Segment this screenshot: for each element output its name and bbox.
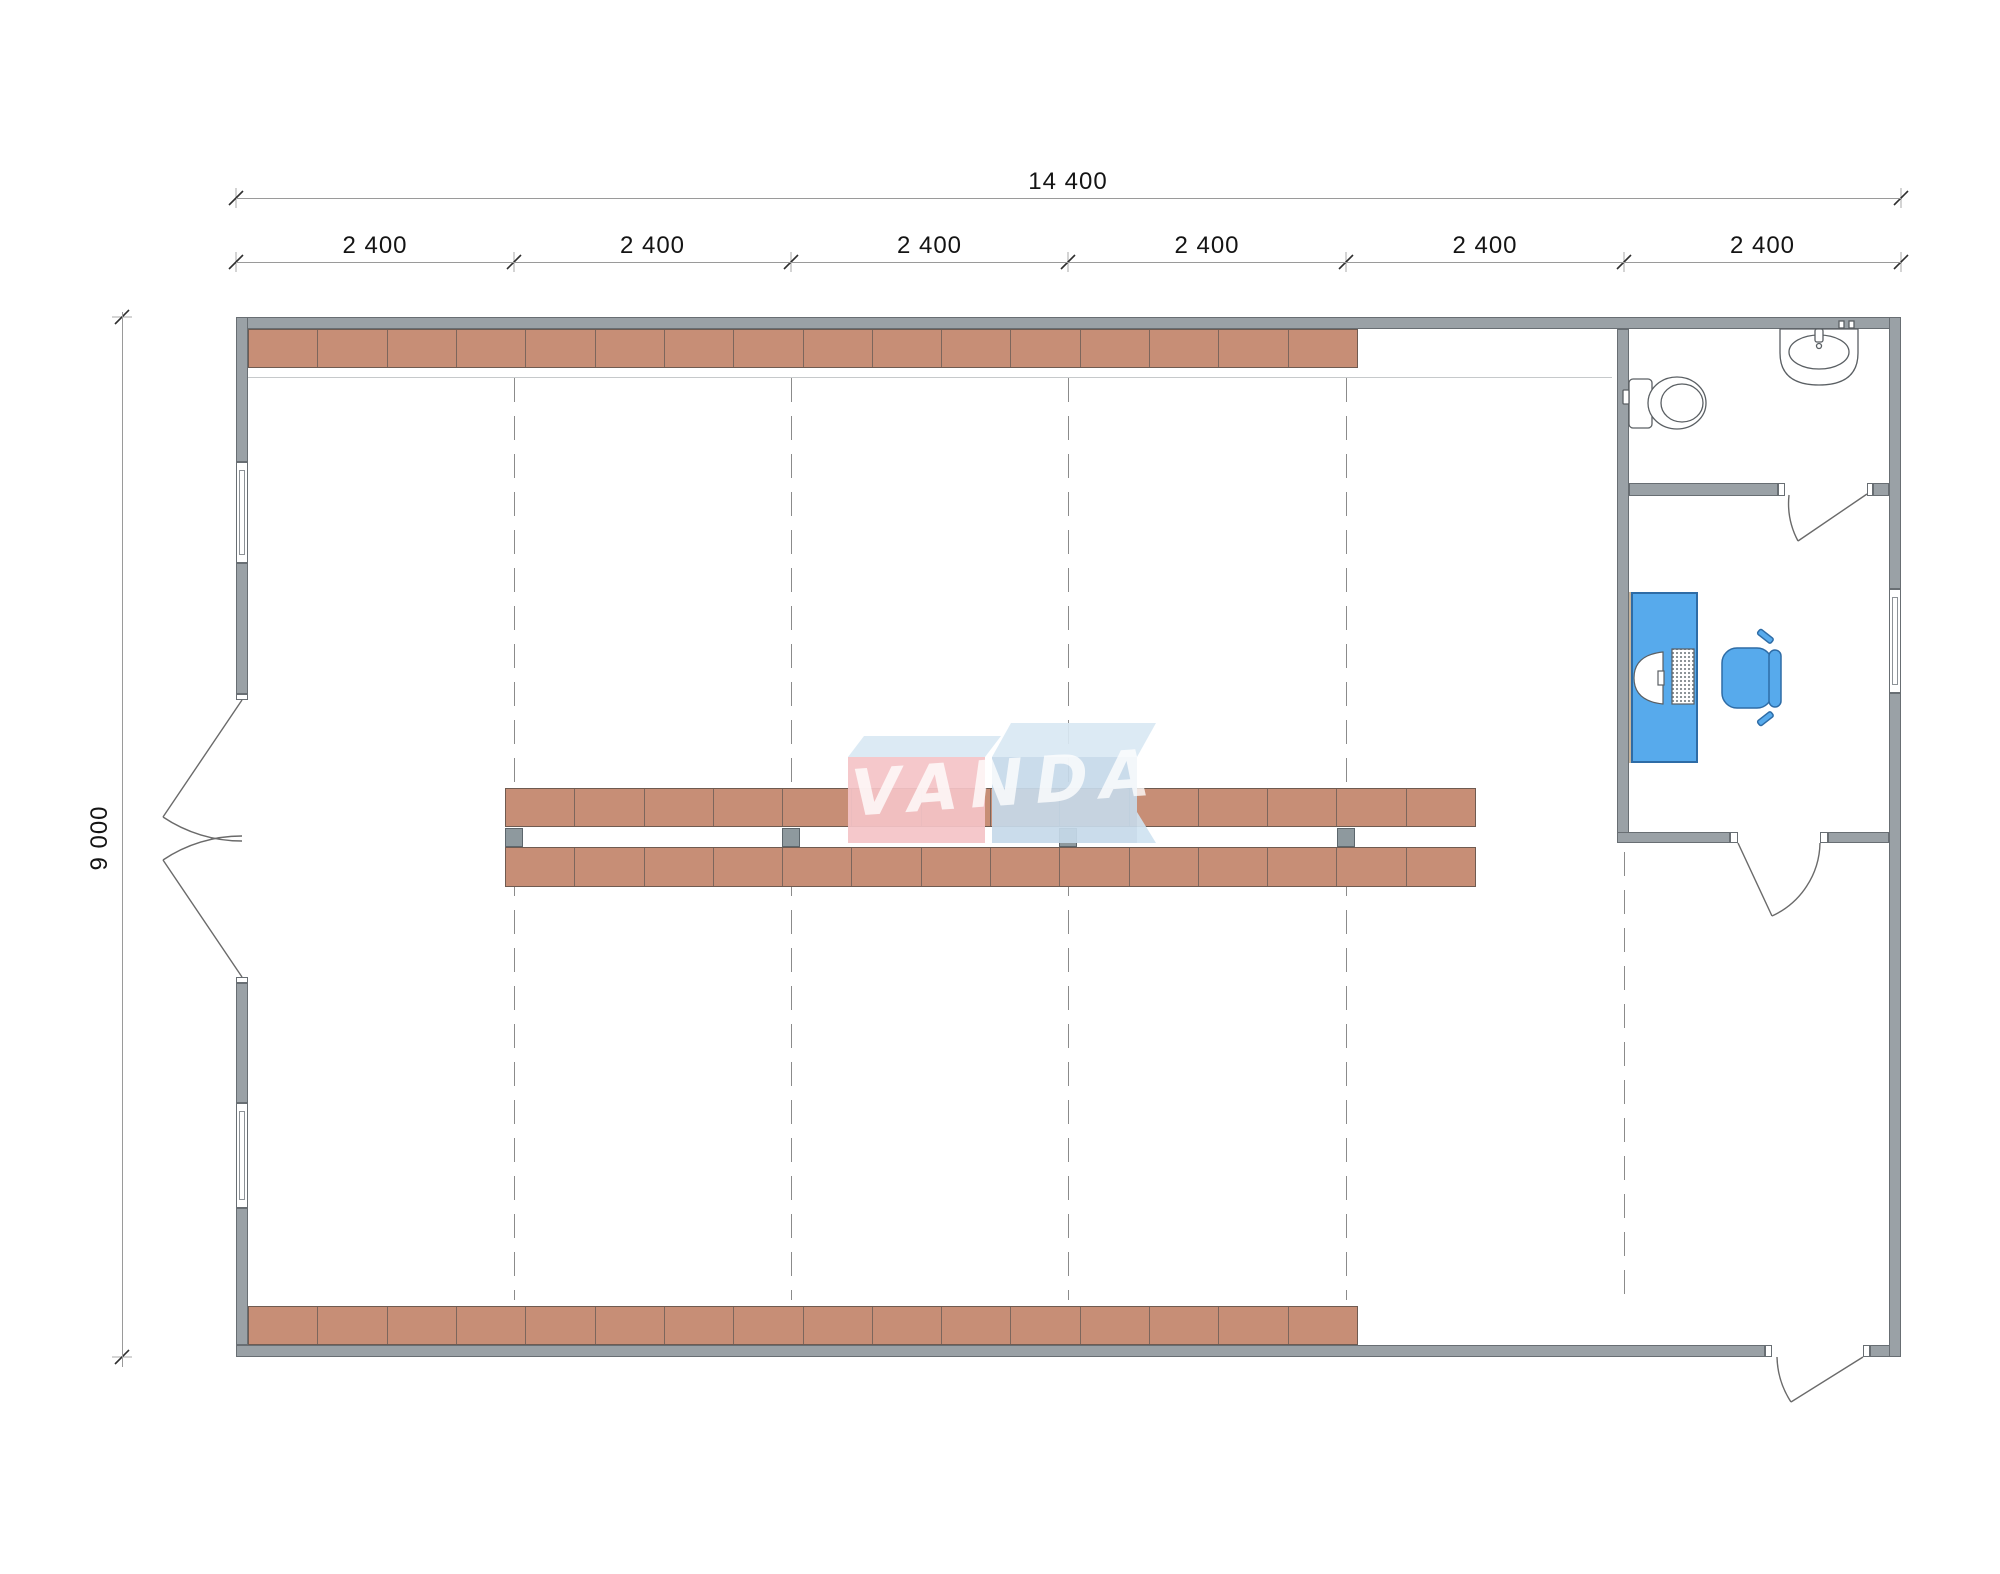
shelf-segment (644, 789, 713, 826)
shelf-segment (990, 848, 1059, 886)
top-shelf-shadow-line (248, 377, 1612, 378)
shelf-segment (456, 1307, 525, 1344)
shelf-segment (990, 789, 1059, 826)
shelf-segment (782, 789, 851, 826)
wall-bottom-left-segment (236, 1345, 1765, 1357)
shelf-segment (387, 1307, 456, 1344)
door-swing-arc (163, 817, 242, 841)
shelf-segment (1198, 848, 1267, 886)
shelf-segment (713, 848, 782, 886)
shelf-segment (1080, 1307, 1149, 1344)
shelf-segment (1010, 1307, 1079, 1344)
chair-armrest (1757, 629, 1774, 644)
dim-label-bay: 2 400 (620, 232, 685, 260)
wall-left-segment-1 (236, 317, 248, 462)
floor-plan-canvas: VANDA 14 400 9 000 2 4002 4002 4002 4002… (0, 0, 2000, 1574)
dim-label-bay: 2 400 (1174, 232, 1239, 260)
toilet (1623, 377, 1706, 429)
toilet-bowl (1648, 377, 1706, 429)
jamb-office-right (1820, 832, 1828, 843)
window-right-office (1889, 589, 1901, 693)
shelf-segment (921, 789, 990, 826)
window-left-upper (236, 462, 248, 563)
jamb-entry-bottom (236, 977, 248, 983)
shelf-segment (1288, 330, 1357, 367)
rack-post (505, 828, 523, 847)
window-glass (239, 470, 245, 555)
shelf-segment (1336, 848, 1405, 886)
shelf-segment (733, 330, 802, 367)
double-entry-door (163, 700, 242, 977)
shelf-segment (1406, 848, 1475, 886)
shelf-segment (644, 848, 713, 886)
shelf-segment (733, 1307, 802, 1344)
wall-top (236, 317, 1901, 329)
office-chair (1722, 629, 1781, 727)
shelf-segment (664, 1307, 733, 1344)
toilet-tank (1629, 379, 1652, 428)
shelf-segment (782, 848, 851, 886)
shelf-row-bottom-wall (248, 1306, 1358, 1345)
office-desk (1631, 592, 1698, 763)
shelf-segment (1198, 789, 1267, 826)
shelf-segment (1288, 1307, 1357, 1344)
shelf-segment (872, 1307, 941, 1344)
bathroom-door (1789, 494, 1867, 541)
door-swing-arc (163, 836, 242, 860)
shelf-segment (525, 1307, 594, 1344)
shelf-segment (1080, 330, 1149, 367)
shelf-segment (1149, 1307, 1218, 1344)
sink-faucet (1815, 329, 1823, 342)
shelf-segment (803, 330, 872, 367)
jamb-exterior-right (1863, 1345, 1870, 1357)
shelf-segment (851, 789, 920, 826)
toilet-seat (1661, 384, 1703, 422)
shelf-row-top-wall (248, 329, 1358, 368)
door-leaf (1798, 494, 1867, 541)
shelf-segment (872, 330, 941, 367)
shelf-segment (803, 1307, 872, 1344)
rack-post (1337, 828, 1355, 847)
shelf-segment (1218, 1307, 1287, 1344)
shelf-segment (249, 330, 317, 367)
jamb-bathroom-left (1778, 483, 1785, 496)
door-leaf (163, 700, 242, 817)
shelf-segment (1129, 848, 1198, 886)
shelf-segment (941, 330, 1010, 367)
shelf-segment (1267, 789, 1336, 826)
chair-backrest (1769, 650, 1781, 707)
window-glass (1892, 597, 1898, 685)
dim-label-bay: 2 400 (342, 232, 407, 260)
shelf-segment (595, 330, 664, 367)
rack-post (782, 828, 800, 847)
watermark-box-top-left (848, 736, 1001, 757)
jamb-exterior-left (1765, 1345, 1772, 1357)
shelf-row-center-lower (505, 847, 1476, 887)
office-door (1738, 843, 1820, 916)
door-swing-arc (1777, 1357, 1791, 1402)
shelf-segment (506, 789, 574, 826)
shelf-segment (506, 848, 574, 886)
door-leaf (163, 860, 242, 977)
wall-left-segment-2 (236, 563, 248, 694)
dim-label-bay: 2 400 (1452, 232, 1517, 260)
dim-label-total-height: 9 000 (86, 805, 114, 870)
shelf-segment (1406, 789, 1475, 826)
shelf-segment (574, 789, 643, 826)
shelf-segment (1059, 848, 1128, 886)
wall-right-segment-1 (1889, 317, 1901, 589)
shelf-segment (921, 848, 990, 886)
sink-basin (1780, 329, 1858, 385)
shelf-segment (1336, 789, 1405, 826)
dim-label-total-width: 14 400 (1028, 168, 1107, 196)
shelf-segment (1149, 330, 1218, 367)
shelf-segment (249, 1307, 317, 1344)
wall-bathroom-south-segment (1629, 483, 1778, 496)
dim-line-height (122, 312, 123, 1367)
jamb-entry-top (236, 694, 248, 700)
wall-office-south-segment-1 (1617, 832, 1730, 843)
shelf-segment (525, 330, 594, 367)
shelf-segment (1218, 330, 1287, 367)
dim-line-total-width (236, 198, 1901, 199)
jamb-bathroom-right (1867, 483, 1873, 496)
shelf-segment (317, 1307, 386, 1344)
chair-armrest (1757, 711, 1774, 726)
window-glass (239, 1111, 245, 1200)
wall-bathroom-south-stub (1873, 483, 1889, 496)
sink-drain (1817, 344, 1822, 349)
shelf-segment (1059, 789, 1128, 826)
sink-bowl (1789, 335, 1849, 369)
door-swing-arc (1789, 495, 1798, 541)
dim-label-bay: 2 400 (897, 232, 962, 260)
rack-post (1059, 828, 1077, 847)
window-left-lower (236, 1103, 248, 1208)
shelf-segment (595, 1307, 664, 1344)
shelf-segment (1267, 848, 1336, 886)
shelf-segment (387, 330, 456, 367)
chair-seat (1722, 648, 1772, 708)
wall-left-segment-4 (236, 1208, 248, 1345)
jamb-office-left (1730, 832, 1738, 843)
shelf-segment (317, 330, 386, 367)
door-leaf (1738, 843, 1772, 916)
shelf-segment (664, 330, 733, 367)
door-swing-arc (1772, 843, 1820, 916)
dim-label-bay: 2 400 (1730, 232, 1795, 260)
shelf-row-center-upper (505, 788, 1476, 827)
wall-office-south-segment-2 (1828, 832, 1889, 843)
grid-line-dashed (1624, 852, 1625, 1300)
dim-line-bays (236, 262, 1901, 263)
wall-partition-office (1617, 329, 1629, 843)
wall-left-segment-3 (236, 983, 248, 1103)
shelf-segment (713, 789, 782, 826)
shelf-segment (1129, 789, 1198, 826)
shelf-segment (1010, 330, 1079, 367)
shelf-segment (456, 330, 525, 367)
shelf-segment (574, 848, 643, 886)
door-leaf (1791, 1357, 1863, 1402)
exterior-door (1777, 1357, 1863, 1402)
watermark-box-top-right (992, 723, 1156, 757)
wall-right-segment-2 (1889, 693, 1901, 1357)
shelf-segment (941, 1307, 1010, 1344)
sink (1780, 321, 1858, 385)
shelf-segment (851, 848, 920, 886)
